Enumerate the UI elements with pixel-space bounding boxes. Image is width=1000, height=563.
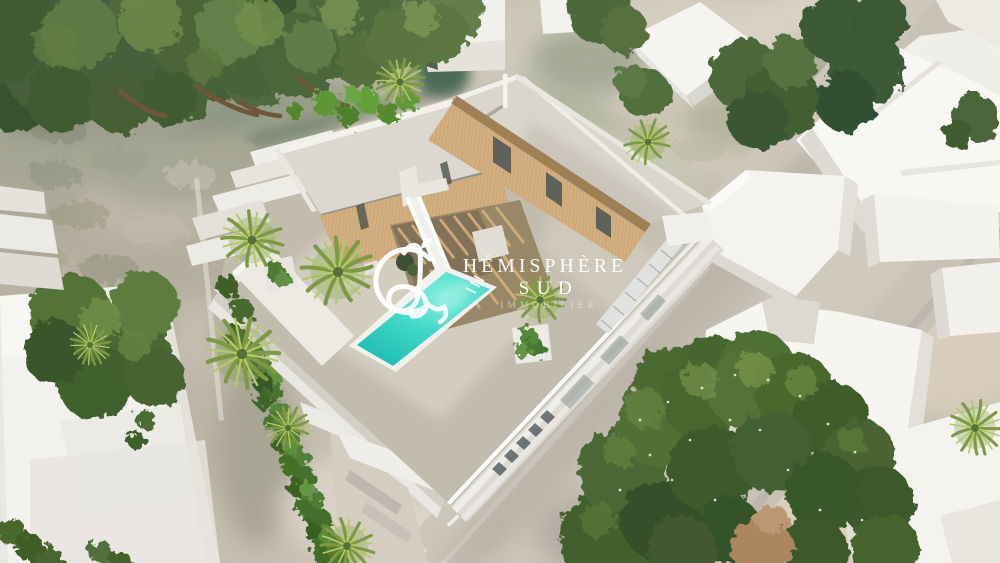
- svg-text:IMMOBILIER: IMMOBILIER: [500, 301, 598, 311]
- svg-text:SUD: SUD: [519, 278, 580, 299]
- svg-text:HÉMISPHÈRE: HÉMISPHÈRE: [463, 255, 627, 277]
